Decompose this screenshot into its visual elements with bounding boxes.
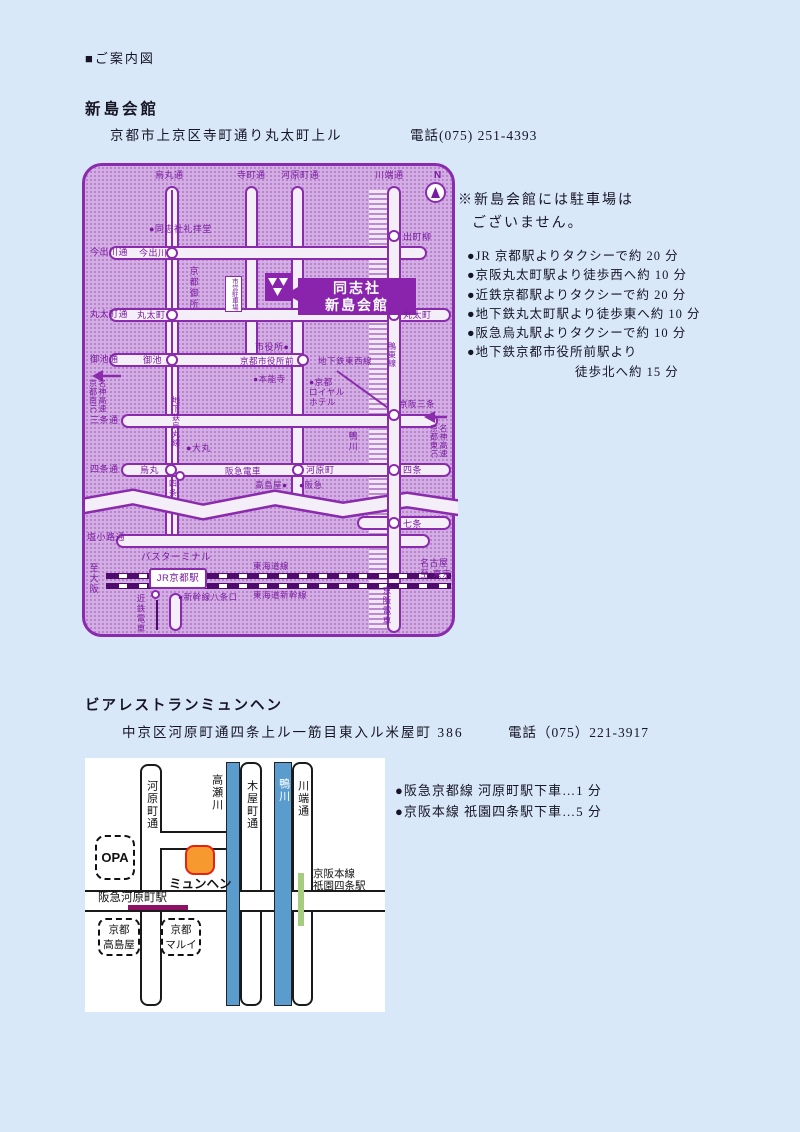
line-label-shinkansen: 東海道新幹線 [253, 590, 307, 600]
line-label-oto: 鴨東線 [387, 342, 396, 368]
opa-building-box: OPA [95, 835, 135, 880]
parking-note-line2: ございません。 [472, 212, 584, 232]
street-label-imadegawa-dori: 今出川通 [90, 247, 128, 258]
munchen-restaurant-map: 河原町通 高瀬川 木屋町通 鴨川 川端通 OPA ミュンヘン 阪急河原町駅 京都… [85, 758, 385, 1012]
station-label-keihan-sanjo: 京阪三条 [399, 399, 435, 409]
street-label-karasuma-dori: 烏丸通 [155, 170, 184, 181]
street-label-shijo-dori: 四条通 [90, 464, 119, 475]
street-label-oike-dori: 御池通 [90, 354, 119, 365]
river-label-kamo: 鴨川 [277, 778, 290, 803]
hankyu-line-mark [128, 905, 188, 910]
poi-label-cityhall: 市役所● [255, 342, 289, 353]
compass-n-label: N [434, 170, 442, 182]
keihan-gion-shijo-station-label: 京阪本線 祇園四条駅 [313, 868, 366, 892]
station-label-shijo-e: 四条 [403, 465, 422, 476]
street-label-teramachi-dori: 寺町通 [237, 170, 266, 181]
street-label-sanjo-dori: 三条通 [90, 415, 119, 426]
station-label-marutamachi-w: 丸太町 [137, 310, 166, 321]
line-label-kintetsu: 近鉄電車 [136, 594, 146, 634]
edge-label-meishin-east-ic: 名神高速 京都東IC [429, 424, 448, 459]
poi-label-gosho: 京都御所 [188, 266, 199, 310]
street2-label-kiyamachi: 木屋町通 [245, 780, 258, 830]
poi-label-chapel: ●同志社礼拝堂 [149, 224, 212, 235]
section2-phone: 電話（075）221-3917 [508, 721, 649, 741]
access-item: ●京阪丸太町駅より徒歩西へ約 10 分 [467, 264, 687, 283]
poi-label-hankyu-dept: ●阪急 [299, 480, 323, 490]
venue-name-line2: 新島会館 [325, 297, 389, 313]
section2-address: 中京区河原町通四条上ル一筋目東入ル米屋町 386 [122, 721, 464, 741]
street2-label-kawaramachi: 河原町通 [145, 780, 158, 830]
station-circle-shiyakushomae [297, 354, 309, 366]
street-label-kawaramachi-dori: 河原町通 [281, 170, 319, 181]
road-teramachi-dori [245, 186, 258, 366]
line-label-karasuma-subway: 地下鉄烏丸線 [171, 396, 180, 447]
access-item: ●阪急烏丸駅よりタクシーで約 10 分 [467, 322, 686, 341]
edge-label-meishin-south-ic: 名神高速 京都南IC [88, 379, 107, 414]
station-circle-shijo-e [388, 464, 400, 476]
kintetsu-terminal-circle [151, 590, 160, 599]
compass-icon [425, 182, 446, 203]
station-circle-shichijo [388, 517, 400, 529]
page-heading: ■ご案内図 [85, 48, 155, 67]
section1-title: 新島会館 [85, 97, 159, 119]
station-label-oike: 御池 [143, 355, 162, 366]
opa-label: OPA [101, 850, 128, 865]
kyoto-takashimaya-box: 京都 高島屋 [98, 918, 140, 956]
road-kawaramachi-dori [291, 186, 304, 506]
edge-label-to-osaka: 至大阪 [88, 563, 99, 595]
jr-kyoto-station-box: JR京都駅 [149, 568, 207, 589]
access-item: ●地下鉄丸太町駅より徒歩東へ約 10 分 [467, 303, 701, 322]
kyoto-marui-label: 京都 マルイ [165, 922, 197, 952]
station-label-marutamachi-e: 丸太町 [403, 310, 432, 321]
station-circle-kawaramachi [292, 464, 304, 476]
edge-label-to-nagoya-tokyo: 名古屋 至 東京 [420, 558, 452, 579]
section1-phone: 電話(075) 251-4393 [410, 124, 537, 144]
city-parking-box: 市営駐車場 [225, 276, 242, 312]
station-label-shiyakushomae: 京都市役所前 [240, 356, 294, 366]
line-label-tokaido: 東海道線 [253, 561, 289, 571]
munchen-marker-icon [185, 845, 215, 875]
street-label-shiokoji-dori: 塩小路通 [87, 532, 125, 543]
poi-label-bus-terminal: バスターミナル [141, 552, 211, 563]
poi-label-hachijo: ●新幹線八条口 [178, 592, 238, 602]
venue-name-box: 同志社 新島会館 [298, 278, 416, 315]
venue-name-line1: 同志社 [333, 280, 381, 296]
station-circle-demachiyanagi [388, 230, 400, 242]
poi-label-takashimaya: 高島屋● [255, 480, 288, 490]
keihan-line-mark [298, 873, 304, 926]
kintetsu-rail [156, 600, 158, 630]
station-circle-oike [166, 354, 178, 366]
station-label-demachiyanagi: 出町柳 [403, 232, 432, 243]
line-label-tozai: 地下鉄東西線 [318, 356, 372, 366]
station-label-shijo-subway: 四条 [168, 479, 177, 498]
access-item: ●JR 京都駅よりタクシーで約 20 分 [467, 245, 679, 264]
street-label-marutamachi-dori: 丸太町通 [90, 309, 128, 320]
access2-item: ●阪急京都線 河原町駅下車…1 分 [395, 780, 602, 799]
street-label-kawabata-dori: 川端通 [375, 170, 404, 181]
section2-title: ビアレストランミュンヘン [85, 694, 283, 715]
access-item: ●地下鉄京都市役所前駅より [467, 341, 637, 360]
street2-label-kawabata: 川端通 [296, 780, 309, 818]
road-shiokoji-dori [116, 534, 430, 548]
access-item: 徒歩北へ約 15 分 [575, 361, 679, 380]
poi-label-daimaru: ●大丸 [186, 443, 211, 454]
poi-label-royal-hotel: ●京都 ロイヤル ホテル [309, 377, 345, 407]
guide-map-page: ■ご案内図 新島会館 京都市上京区寺町通り丸太町上ル 電話(075) 251-4… [0, 0, 800, 1132]
station-label-kawaramachi: 河原町 [306, 465, 335, 476]
station-label-imadegawa: 今出川 [139, 248, 168, 259]
section1-address: 京都市上京区寺町通り丸太町上ル [110, 124, 343, 144]
poi-label-kamogawa: 鴨川 [347, 431, 358, 452]
access2-item: ●京阪本線 祇園四条駅下車…5 分 [395, 801, 602, 820]
station-label-karasuma: 烏丸 [140, 465, 159, 476]
jr-kyoto-station-label: JR京都駅 [157, 573, 200, 584]
line-label-keihan: 京阪電車 [382, 586, 392, 626]
munchen-label: ミュンヘン [169, 877, 232, 891]
hankyu-kawaramachi-station-label: 阪急河原町駅 [98, 892, 167, 905]
station-label-shichijo: 七条 [403, 519, 422, 530]
niijima-kaikan-map: JR京都駅 N 同志社 新島会館 市営駐車場 [82, 163, 455, 637]
station-circle-marutamachi-w [166, 309, 178, 321]
station-circle-keihan-sanjo [388, 409, 400, 421]
line-label-hankyu: 阪急電車 [225, 466, 261, 476]
kyoto-marui-box: 京都 マルイ [161, 918, 201, 956]
river-label-takase: 高瀬川 [210, 774, 223, 812]
access-item: ●近鉄京都駅よりタクシーで約 20 分 [467, 284, 686, 303]
parking-note-line1: ※新島会館には駐車場は [458, 189, 634, 209]
poi-label-honnoji: ●本能寺 [253, 374, 286, 384]
kyoto-takashimaya-label: 京都 高島屋 [103, 922, 135, 952]
city-parking-label: 市営駐車場 [230, 278, 238, 311]
